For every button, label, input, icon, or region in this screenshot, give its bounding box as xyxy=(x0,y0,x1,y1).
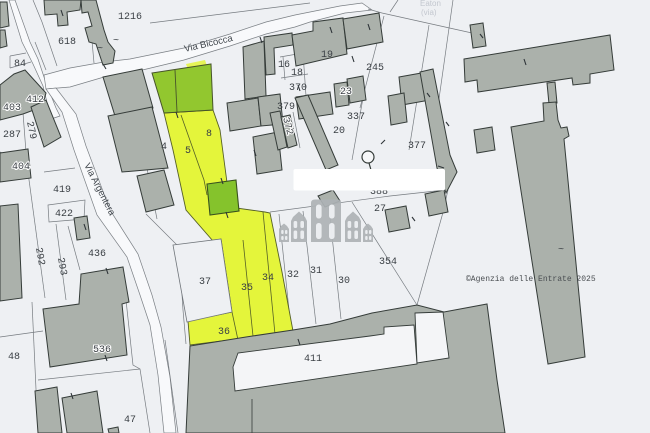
svg-text:~: ~ xyxy=(97,44,103,55)
svg-text:30: 30 xyxy=(338,276,350,287)
svg-text:~: ~ xyxy=(558,245,564,256)
svg-text:34: 34 xyxy=(262,273,274,284)
svg-text:377: 377 xyxy=(408,141,426,152)
svg-text:36: 36 xyxy=(218,327,230,338)
svg-text:422: 422 xyxy=(55,209,73,220)
svg-text:84: 84 xyxy=(14,59,26,70)
svg-text:337: 337 xyxy=(347,112,365,123)
svg-text:403: 403 xyxy=(3,103,21,114)
svg-text:48: 48 xyxy=(8,352,20,363)
svg-text:23: 23 xyxy=(340,87,352,98)
svg-text:5: 5 xyxy=(185,146,191,157)
svg-text:1216: 1216 xyxy=(118,12,142,23)
svg-text:32: 32 xyxy=(287,270,299,281)
svg-text:20: 20 xyxy=(333,126,345,137)
svg-text:37: 37 xyxy=(199,277,211,288)
svg-text:8: 8 xyxy=(206,129,212,140)
svg-text:27: 27 xyxy=(374,204,386,215)
svg-text:18: 18 xyxy=(291,68,303,79)
svg-text:Eaton: Eaton xyxy=(420,0,441,8)
svg-text:287: 287 xyxy=(3,130,21,141)
svg-text:412: 412 xyxy=(26,95,44,106)
svg-text:19: 19 xyxy=(321,50,333,61)
svg-text:419: 419 xyxy=(53,185,71,196)
svg-text:618: 618 xyxy=(58,37,76,48)
svg-text:35: 35 xyxy=(241,283,253,294)
svg-text:370: 370 xyxy=(289,83,307,94)
svg-text:411: 411 xyxy=(304,354,322,365)
svg-text:©Agenzia delle Entrate 2025: ©Agenzia delle Entrate 2025 xyxy=(466,275,596,284)
svg-text:436: 436 xyxy=(88,249,106,260)
svg-text:(via): (via) xyxy=(421,8,437,17)
svg-text:404: 404 xyxy=(12,162,30,173)
svg-text:16: 16 xyxy=(278,60,290,71)
svg-text:31: 31 xyxy=(310,266,322,277)
svg-text:~: ~ xyxy=(113,36,119,47)
svg-text:4: 4 xyxy=(161,142,167,153)
svg-text:536: 536 xyxy=(93,345,111,356)
svg-text:379: 379 xyxy=(277,102,295,113)
svg-text:47: 47 xyxy=(124,415,136,426)
svg-text:354: 354 xyxy=(379,257,397,268)
svg-text:245: 245 xyxy=(366,63,384,74)
